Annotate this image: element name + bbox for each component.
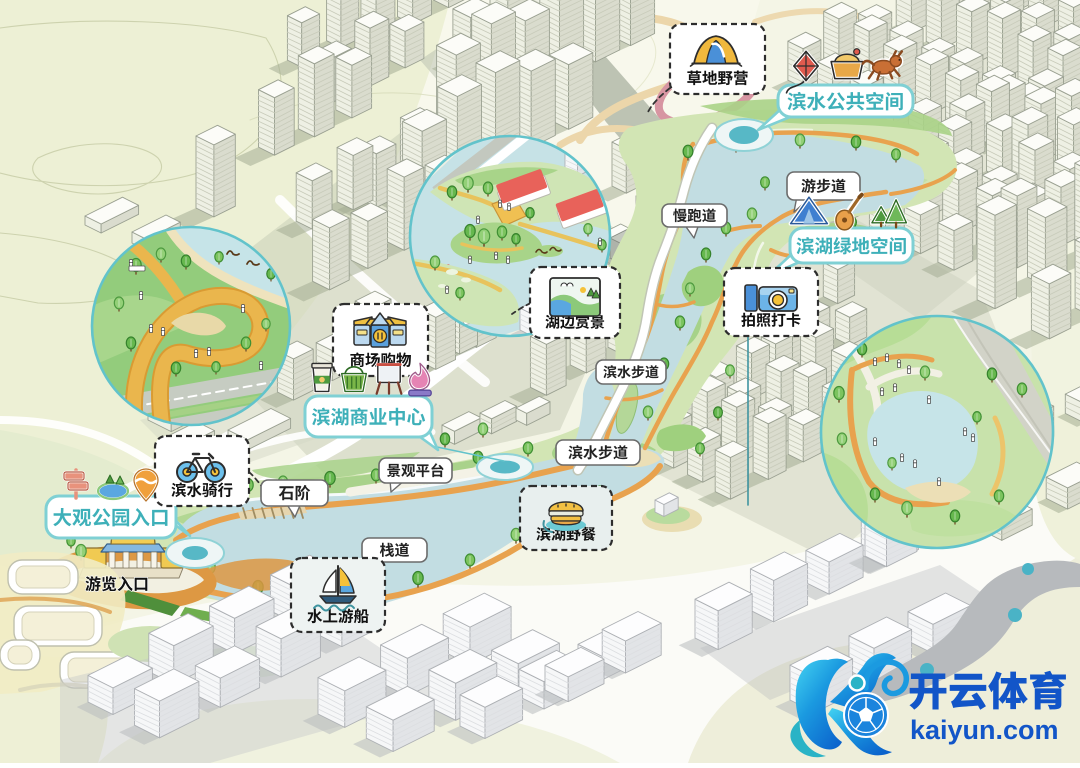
svg-text:kaiyun.com: kaiyun.com (910, 715, 1059, 745)
